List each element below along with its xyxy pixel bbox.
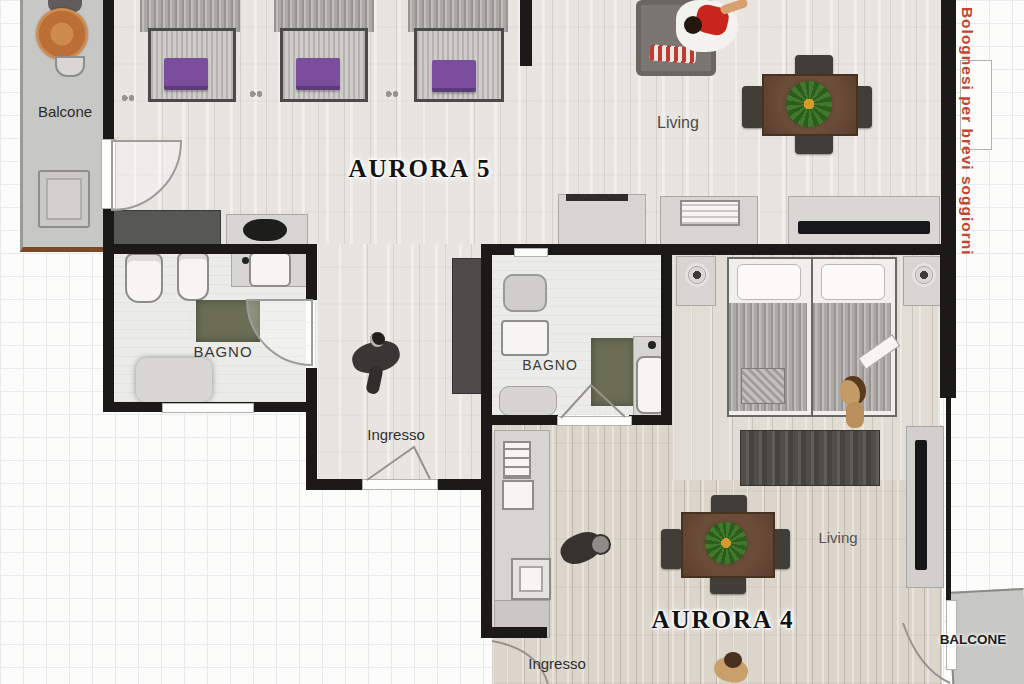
door-arc-entrance5 xyxy=(367,447,430,480)
floor-plan-canvas: Balcone AURORA 5 Living BAGNO Ingresso B… xyxy=(0,0,1024,684)
title-aurora5: AURORA 5 xyxy=(330,155,510,183)
door-arcs xyxy=(0,0,1024,684)
label-balcone-a4: BALCONE xyxy=(928,632,1018,647)
label-living-a4: Living xyxy=(800,529,876,546)
label-ingresso-a4: Ingresso xyxy=(518,655,596,672)
label-balcone-a5: Balcone xyxy=(22,103,108,120)
door-arc-balcony5 xyxy=(112,141,181,210)
watermark-text: e Bolognesi per brevi soggiorni xyxy=(958,0,976,292)
label-ingresso-a5: Ingresso xyxy=(356,426,436,443)
door-arc-bath4 xyxy=(561,385,625,418)
label-bagno-a5: BAGNO xyxy=(178,343,268,360)
label-bagno-a4: BAGNO xyxy=(512,357,588,373)
title-aurora4: AURORA 4 xyxy=(648,606,798,634)
label-living-a5: Living xyxy=(628,114,728,132)
